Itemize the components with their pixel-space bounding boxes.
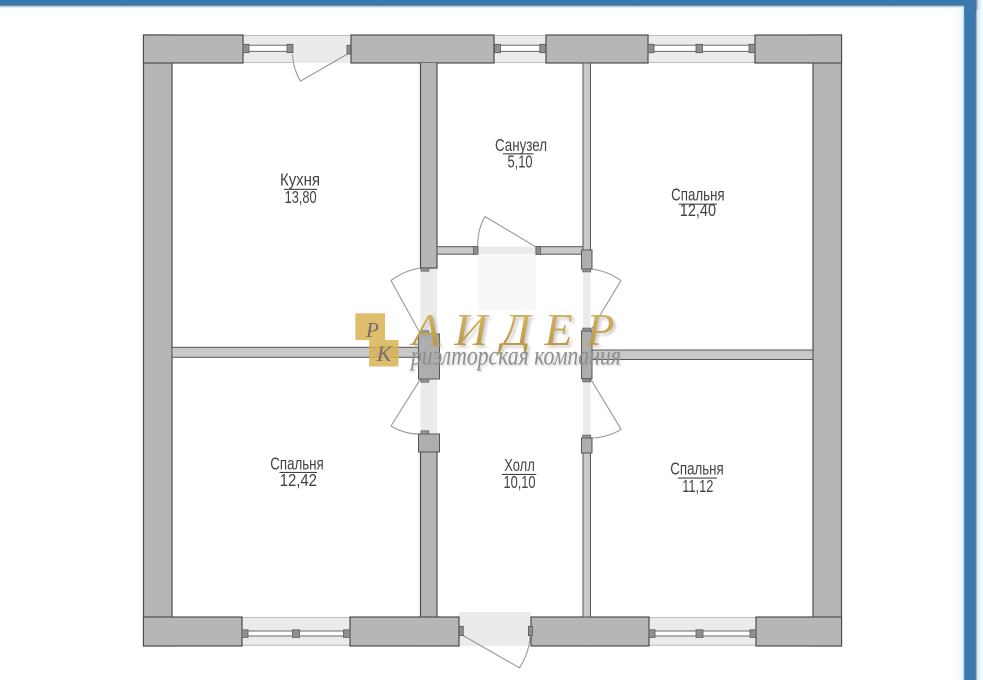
svg-text:12,40: 12,40	[680, 200, 716, 220]
svg-text:11,12: 11,12	[682, 476, 713, 496]
svg-text:К: К	[376, 341, 393, 366]
svg-text:риэлторская компания: риэлторская компания	[409, 341, 621, 371]
svg-text:Р: Р	[365, 318, 379, 342]
